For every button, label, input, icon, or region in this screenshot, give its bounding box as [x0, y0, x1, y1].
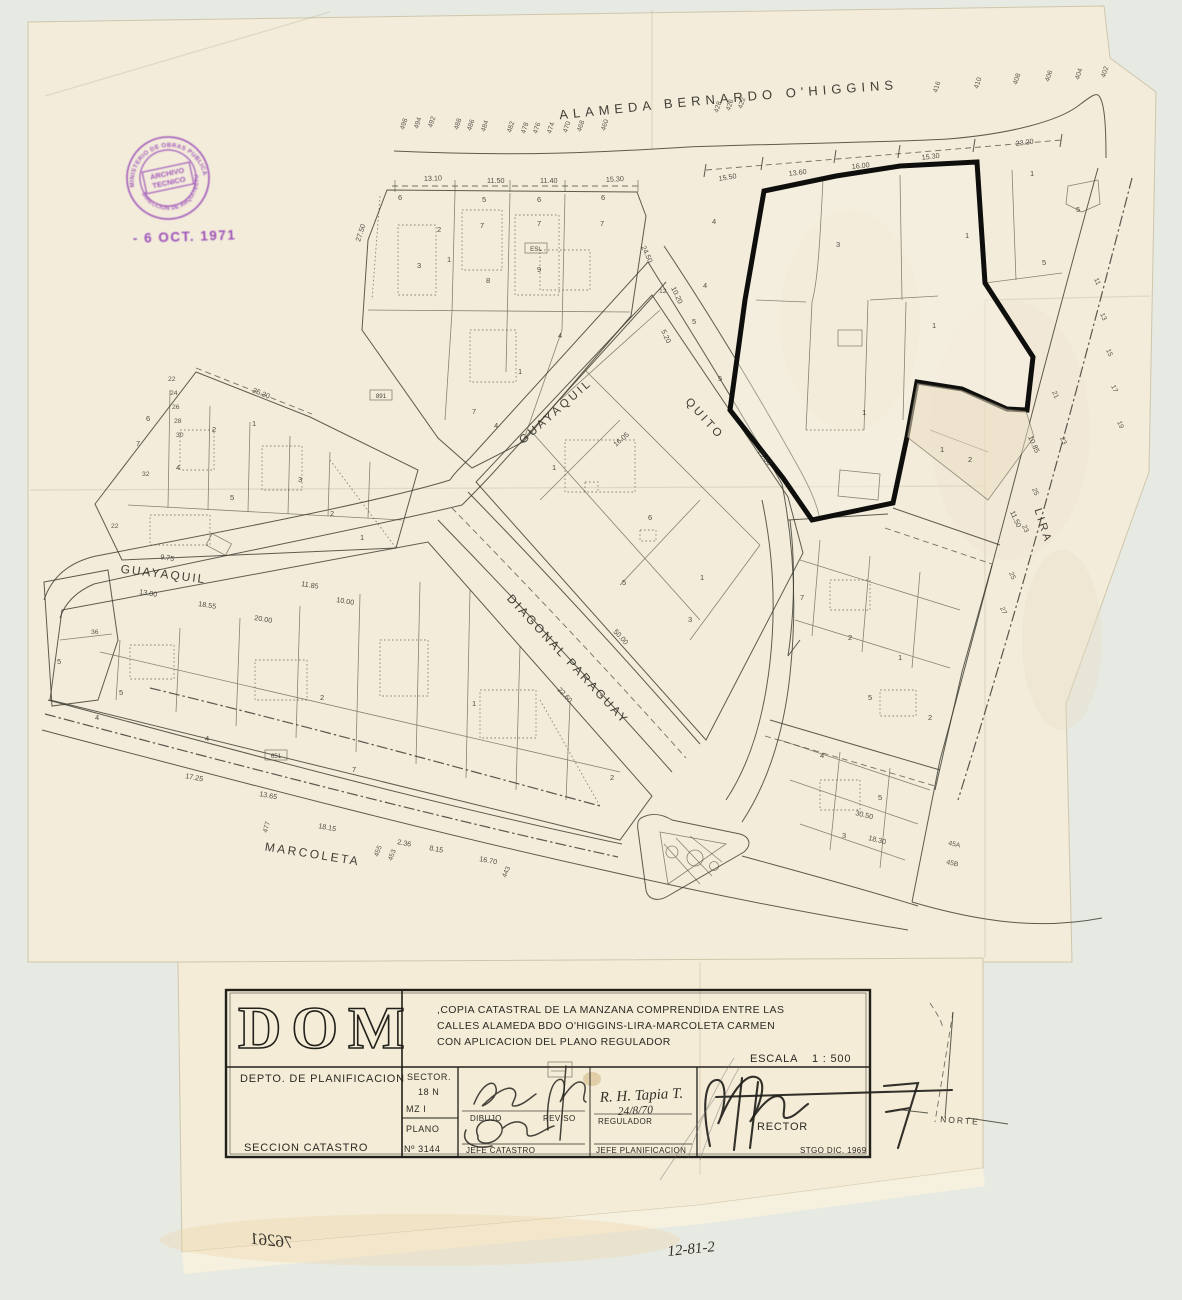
- lot-number: 2: [610, 773, 614, 782]
- lot-number: 6: [146, 414, 150, 423]
- lot-number: 7: [480, 221, 484, 230]
- paper-sheets: [28, 6, 1156, 1274]
- regulador-label: REGULADOR: [598, 1117, 652, 1126]
- lot-number: 4: [494, 421, 498, 430]
- regulador-signature-date: 24/8/70: [618, 1104, 654, 1118]
- lot-number: 2: [330, 509, 334, 518]
- dimension-label: 15.30: [606, 174, 624, 184]
- lot-number: 3: [688, 615, 692, 624]
- lot-number: 7: [800, 593, 804, 602]
- lot-number: 4: [712, 217, 716, 226]
- dimension-label: 13.10: [424, 173, 442, 183]
- sector-value: 18 N: [418, 1087, 439, 1097]
- address-number: 30: [176, 432, 184, 439]
- lot-number: 5: [482, 195, 486, 204]
- lot-number: 1: [862, 408, 866, 417]
- lot-number: 2: [848, 633, 852, 642]
- dom-logo: DOM: [238, 995, 415, 1061]
- lot-number: 5: [718, 374, 722, 383]
- lot-number: 1: [518, 367, 522, 376]
- title-desc-1: ,COPIA CATASTRAL DE LA MANZANA COMPRENDI…: [437, 1004, 784, 1016]
- title-desc-3: CON APLICACION DEL PLANO REGULADOR: [437, 1036, 671, 1048]
- lot-number: 7: [472, 407, 476, 416]
- lot-number: 5: [622, 578, 626, 587]
- lot-number: 2: [320, 693, 324, 702]
- address-number: 28: [174, 418, 182, 425]
- lot-number: 5: [1076, 205, 1080, 214]
- lot-number: 8: [486, 276, 490, 285]
- address-number: 22: [168, 376, 176, 383]
- lot-number: 1: [1030, 169, 1034, 178]
- lot-number: 5: [1042, 258, 1046, 267]
- label-box-text: ESL: [530, 246, 542, 253]
- lot-number: 3: [842, 831, 846, 840]
- sector-label: SECTOR.: [407, 1072, 451, 1082]
- dimension-label: 16.00: [851, 160, 870, 171]
- plano-value: Nº 3144: [404, 1144, 441, 1154]
- lot-number: 1: [965, 231, 969, 240]
- seccion-label: SECCION CATASTRO: [244, 1142, 368, 1154]
- lot-number: 3: [298, 475, 302, 484]
- lot-number: 1: [932, 321, 936, 330]
- lot-number: 7: [600, 219, 604, 228]
- lot-number: 3: [836, 240, 840, 249]
- lot-number: 6: [648, 513, 652, 522]
- lot-number: 4: [95, 713, 99, 722]
- lot-number: 2: [437, 225, 441, 234]
- lot-number: 4: [205, 734, 209, 743]
- map-canvas: 4984944924884864844824784764744704684604…: [0, 0, 1182, 1300]
- scale-value: 1 : 500: [812, 1053, 851, 1065]
- jefe-planificacion-label: JEFE PLANIFICACION: [596, 1146, 686, 1155]
- jefe-catastro-label: JEFE CATASTRO: [466, 1146, 535, 1155]
- dimension-label: 11.40: [540, 176, 557, 185]
- lot-number: 1: [252, 419, 256, 428]
- lot-number: 2: [212, 425, 216, 434]
- lot-number: 1: [700, 573, 704, 582]
- lot-number: 5: [878, 793, 882, 802]
- lot-number: 7: [136, 439, 140, 448]
- lot-number: 2: [968, 455, 972, 464]
- lot-number: 1: [940, 445, 944, 454]
- mz-value: MZ I: [406, 1104, 426, 1114]
- address-number: 22: [111, 523, 119, 530]
- lot-number: 4: [558, 331, 562, 340]
- lot-number: 9: [537, 265, 541, 274]
- lot-number: 4: [703, 281, 707, 290]
- lot-number: 5: [230, 493, 234, 502]
- address-number: 32: [142, 471, 150, 478]
- lot-number: 5: [692, 317, 696, 326]
- address-number: 24: [170, 390, 178, 397]
- lot-number: 7: [352, 765, 356, 774]
- address-number: 12: [659, 288, 667, 295]
- place-date-label: STGO DIC. 1969: [800, 1146, 867, 1155]
- lot-number: 6: [398, 193, 402, 202]
- lot-number: 4: [176, 463, 180, 472]
- lot-number: 5: [57, 657, 61, 666]
- lot-number: 6: [537, 195, 541, 204]
- lot-number: 6: [601, 193, 605, 202]
- director-label: RECTOR: [757, 1121, 808, 1133]
- lot-number: 1: [472, 699, 476, 708]
- title-desc-2: CALLES ALAMEDA BDO O'HIGGINS-LIRA-MARCOL…: [437, 1020, 775, 1032]
- address-number: 36: [91, 629, 99, 636]
- lot-number: 7: [537, 219, 541, 228]
- lot-number: 1: [898, 653, 902, 662]
- lot-number: 3: [417, 261, 421, 270]
- label-box-text: 891: [376, 393, 387, 400]
- lot-number: 1: [552, 463, 556, 472]
- lot-number: 1: [360, 533, 364, 542]
- dimension-label: 11.50: [487, 176, 504, 185]
- lot-number: 5: [119, 688, 123, 697]
- lot-number: 1: [447, 255, 451, 264]
- depto-label: DEPTO. DE PLANIFICACION: [240, 1073, 405, 1085]
- address-number: 26: [172, 404, 180, 411]
- label-box-text: 651: [271, 753, 282, 760]
- lot-number: 2: [928, 713, 932, 722]
- lot-number: 5: [868, 693, 872, 702]
- scanned-cadastral-map: 4984944924884864844824784764744704684604…: [0, 0, 1182, 1300]
- lot-number: 4: [820, 751, 824, 760]
- plano-label: PLANO: [406, 1124, 440, 1134]
- scale-label: ESCALA: [750, 1053, 798, 1065]
